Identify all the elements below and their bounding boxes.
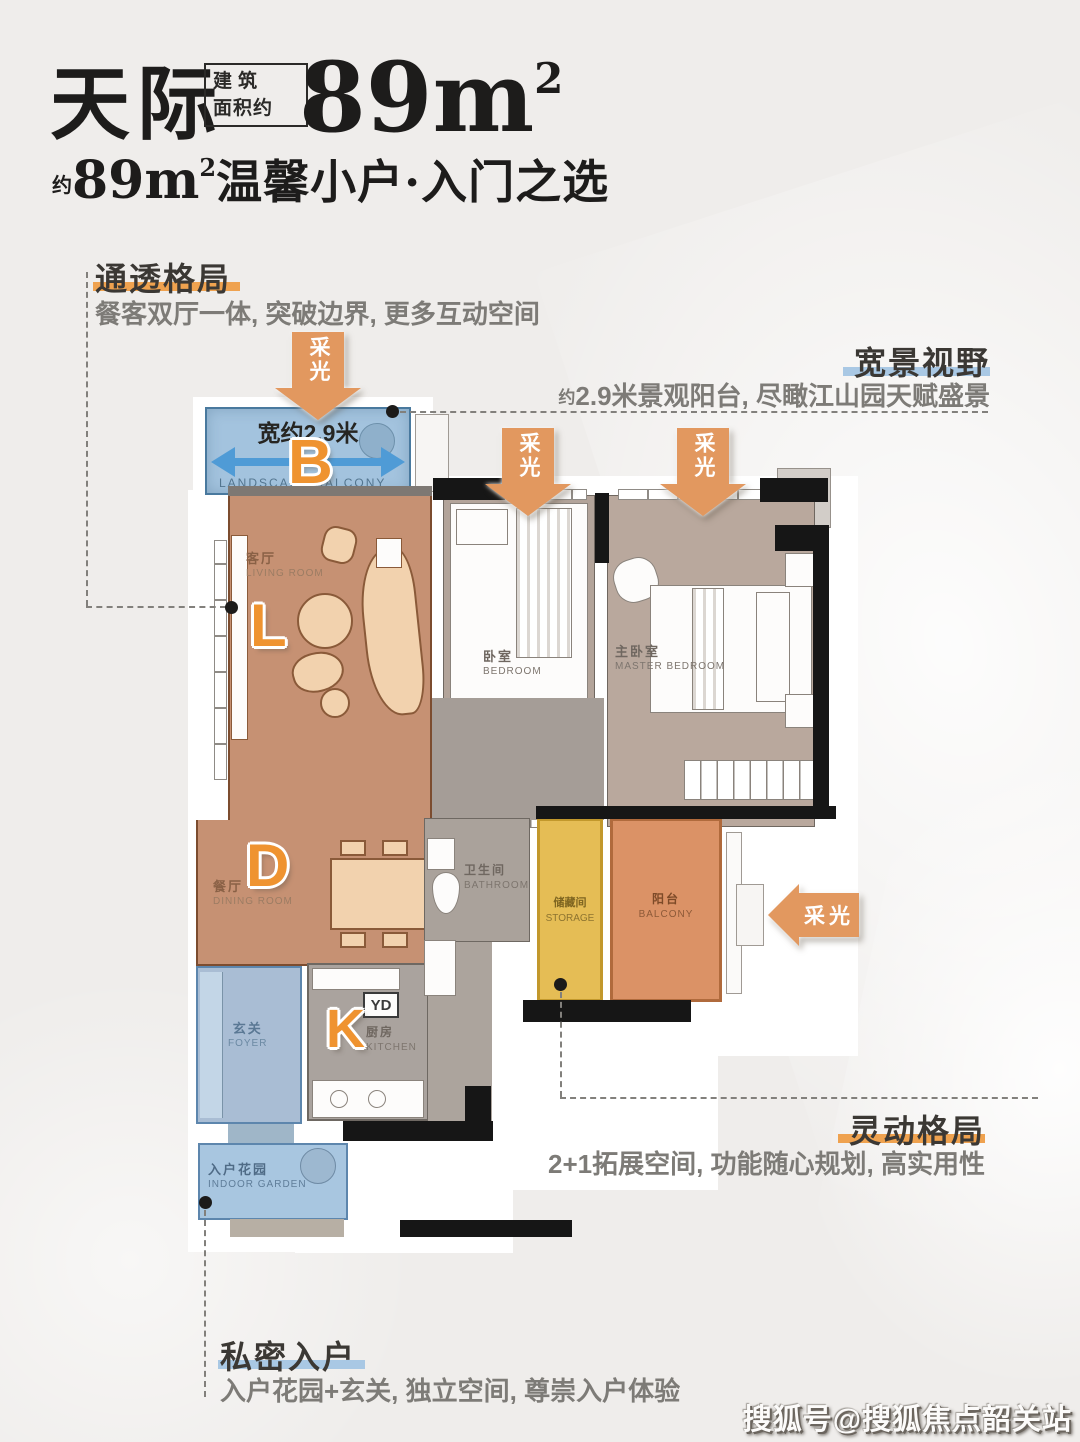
- room-foyer: 玄关 FOYER: [196, 966, 302, 1124]
- garden-plant: [300, 1148, 336, 1184]
- storage-label-en: STORAGE: [540, 912, 600, 926]
- sofa-side-table: [376, 538, 402, 568]
- side-balcony-label-zh: 阳台: [613, 891, 719, 908]
- connector-dot-storage: [554, 978, 567, 991]
- wide-view-approx: 约: [558, 388, 575, 407]
- room-side-balcony: 阳台 BALCONY: [610, 818, 722, 1002]
- daylight-label: 采光: [804, 900, 854, 930]
- daylight-label: 采光: [688, 432, 718, 480]
- foyer-cabinet: [200, 972, 223, 1118]
- bathroom-counter: [424, 940, 456, 996]
- subtitle-area: 89m2: [72, 150, 216, 211]
- room-indoor-garden: 入户花园 INDOOR GARDEN: [198, 1143, 348, 1220]
- foyer-label-en: FOYER: [228, 1037, 267, 1051]
- dining-chair: [382, 840, 408, 856]
- subtitle-text: 温馨小户·入门之选: [216, 155, 609, 209]
- callout-private-entry-desc: 入户花园+玄关, 独立空间, 尊崇入户体验: [220, 1371, 680, 1408]
- bathroom-label-en: BATHROOM: [464, 879, 529, 893]
- area-box-line1: 建筑: [213, 68, 299, 95]
- living-label-zh: 客厅: [246, 550, 324, 567]
- wall: [400, 1220, 572, 1237]
- bathroom-label: 卫生间 BATHROOM: [464, 862, 529, 893]
- daylight-label: 采光: [513, 432, 543, 480]
- master-label-zh: 主卧室: [615, 643, 725, 660]
- wall: [536, 806, 836, 819]
- connector-dot-balcony: [386, 405, 399, 418]
- wall: [465, 1086, 491, 1141]
- kitchen-label-en: KITCHEN: [366, 1041, 417, 1055]
- garden-stone-sill: [230, 1219, 344, 1237]
- daylight-arrow-down: 采光: [485, 428, 571, 516]
- balcony-letter: B: [288, 432, 333, 494]
- dining-chair: [340, 840, 366, 856]
- master-nightstand: [785, 553, 815, 587]
- bathroom-label-zh: 卫生间: [464, 862, 529, 879]
- pouf: [320, 688, 350, 718]
- connector-line: [560, 992, 562, 1097]
- wall: [760, 478, 828, 502]
- storage-label-zh: 储藏间: [540, 895, 600, 912]
- foyer-step: [228, 1124, 294, 1144]
- connector-dot-garden: [199, 1196, 212, 1209]
- dining-table: [330, 858, 430, 930]
- daylight-label: 采光: [303, 336, 333, 384]
- kitchen-label: 厨房 KITCHEN: [366, 1024, 417, 1055]
- callout-transparent-layout-desc: 餐客双厅一体, 突破边界, 更多互动空间: [95, 294, 540, 331]
- side-balcony-label-en: BALCONY: [613, 908, 719, 922]
- connector-line: [560, 1097, 1038, 1099]
- dining-chair: [340, 932, 366, 948]
- arrow-head: [768, 884, 799, 946]
- kitchen-label-zh: 厨房: [366, 1024, 417, 1041]
- connector-dot-living: [225, 601, 238, 614]
- corridor: [432, 698, 604, 820]
- garden-label-zh: 入户花园: [208, 1161, 307, 1178]
- arrow-head: [660, 484, 746, 516]
- stove-burner: [368, 1090, 386, 1108]
- callout-wide-view-desc: 约2.9米景观阳台, 尽瞰江山园天赋盛景: [558, 376, 990, 413]
- kitchen-letter: K: [326, 1002, 365, 1056]
- garden-label-en: INDOOR GARDEN: [208, 1178, 307, 1192]
- wall: [228, 486, 432, 496]
- connector-line: [400, 411, 988, 413]
- coffee-table: [297, 593, 353, 649]
- bathroom-sink: [427, 838, 455, 870]
- subtitle-approx: 约: [52, 175, 72, 197]
- living-label: 客厅 LIVING ROOM: [246, 550, 324, 581]
- page-subtitle: 约89m2温馨小户·入门之选: [52, 146, 609, 212]
- living-letter: L: [250, 596, 287, 656]
- brand-title: 天际: [50, 40, 224, 156]
- area-box-line2: 面积约: [213, 95, 299, 122]
- room-storage: 储藏间 STORAGE: [537, 818, 603, 1002]
- master-label-en: MASTER BEDROOM: [615, 660, 725, 674]
- area-value: 89m2: [299, 24, 563, 153]
- daylight-arrow-down: 采光: [275, 332, 361, 420]
- dining-chair: [382, 932, 408, 948]
- arrow-head: [275, 388, 361, 420]
- master-pillow: [756, 592, 790, 702]
- area-superscript: 2: [534, 54, 563, 103]
- arrow-head: [485, 484, 571, 516]
- kitchen-counter-top: [312, 968, 400, 990]
- promo-floorplan-page: 天际 建筑 面积约 89m2 约89m2温馨小户·入门之选 通透格局 餐客双厅一…: [0, 0, 1080, 1442]
- stove-burner: [330, 1090, 348, 1108]
- bedroom-label-zh: 卧室: [483, 648, 542, 665]
- bedroom-blanket: [516, 508, 572, 658]
- bedroom-label: 卧室 BEDROOM: [483, 648, 542, 679]
- wall: [523, 1000, 691, 1022]
- duct-box: YD: [363, 992, 399, 1018]
- foyer-label-zh: 玄关: [228, 1020, 267, 1037]
- wall: [595, 493, 609, 563]
- connector-line: [86, 272, 88, 606]
- duct-label: YD: [371, 997, 392, 1014]
- living-window-strip: [214, 540, 227, 780]
- bedroom-label-en: BEDROOM: [483, 665, 542, 679]
- connector-line: [204, 1210, 206, 1397]
- watermark: 搜狐号@搜狐焦点韶关站: [743, 1396, 1072, 1438]
- area-label-box: 建筑 面积约: [204, 63, 308, 127]
- callout-flexible-layout-desc: 2+1拓展空间, 功能随心规划, 高实用性: [548, 1144, 985, 1181]
- master-label: 主卧室 MASTER BEDROOM: [615, 643, 725, 674]
- dining-letter: D: [246, 836, 289, 896]
- connector-line: [86, 606, 226, 608]
- master-wardrobe: [684, 760, 816, 800]
- daylight-arrow-down: 采光: [660, 428, 746, 516]
- window-box: [736, 884, 764, 946]
- master-nightstand: [785, 694, 815, 728]
- daylight-arrow-left: 采光: [768, 884, 859, 946]
- wall: [813, 525, 829, 809]
- living-label-en: LIVING ROOM: [246, 567, 324, 581]
